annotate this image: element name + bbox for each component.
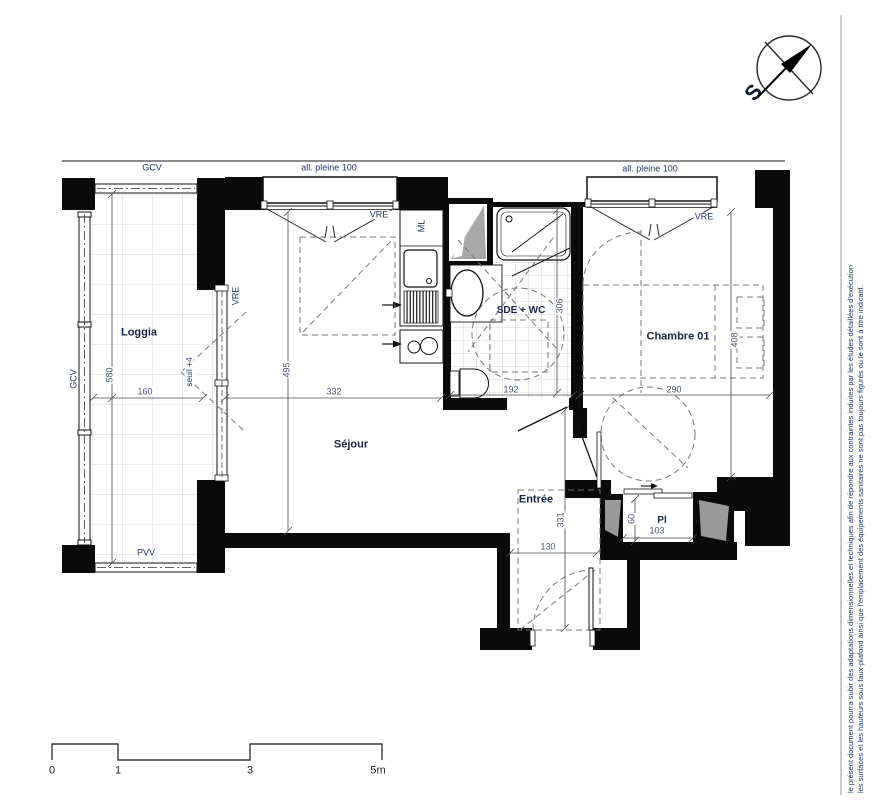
annotation-seuil: seuil +4	[185, 356, 194, 388]
technical-shaft	[449, 204, 487, 261]
dim-sde-height: 306	[556, 297, 565, 314]
dim-loggia-height: 580	[106, 366, 115, 383]
annotation-allege-1: all. pleine 100	[300, 164, 358, 173]
annotation-vre-chambre: VRE	[694, 213, 715, 222]
closet-wall-inserts	[605, 500, 729, 541]
annotation-ml: ML	[418, 219, 427, 234]
disclaimer-line-1: le présent document pourra subir des ada…	[846, 15, 855, 793]
dim-sejour-height: 495	[283, 361, 292, 378]
scale-tick-5m: 5m	[369, 766, 386, 777]
room-label-loggia: Loggia	[121, 328, 157, 339]
dim-placard-depth: 60	[628, 513, 637, 525]
dim-entree-height: 331	[557, 511, 566, 528]
scale-tick-1: 1	[114, 766, 122, 777]
annotation-pvv: PVV	[136, 549, 156, 558]
annotation-vre-loggia: VRE	[232, 286, 241, 307]
kitchen-units	[382, 210, 443, 363]
dim-loggia-width: 160	[136, 388, 153, 397]
scale-tick-0: 0	[48, 766, 56, 777]
chambre-window	[585, 177, 717, 240]
dim-entree-width: 130	[539, 543, 556, 552]
room-label-chambre-01: Chambre 01	[647, 332, 710, 343]
room-label-entree: Entrée	[519, 495, 553, 506]
annotation-gcv-top: GCV	[141, 164, 163, 173]
floor-plan-page: Loggia Séjour SDE + WC Chambre 01 Entrée…	[0, 0, 873, 800]
scale-bar	[52, 744, 382, 760]
annotation-allege-2: all. pleine 100	[621, 165, 679, 174]
dim-placard-width: 103	[648, 527, 665, 536]
dim-chambre-width: 290	[665, 386, 682, 395]
compass-icon	[757, 36, 821, 100]
room-label-sde-wc: SDE + WC	[497, 306, 546, 316]
room-label-placard: Pl	[657, 516, 666, 526]
annotation-gcv-left: GCV	[70, 368, 79, 390]
scale-tick-3: 3	[246, 766, 254, 777]
dim-sde-width: 192	[502, 386, 519, 395]
dim-sejour-width: 332	[325, 388, 342, 397]
dashed-furniture	[300, 230, 764, 630]
annotation-vre-sejour: VRE	[369, 211, 390, 220]
room-label-sejour: Séjour	[334, 440, 368, 451]
disclaimer-line-2: les surfaces et les hauteurs sous faux-p…	[856, 15, 865, 793]
dim-chambre-height: 408	[731, 331, 740, 348]
floor-plan-linework	[0, 0, 873, 800]
